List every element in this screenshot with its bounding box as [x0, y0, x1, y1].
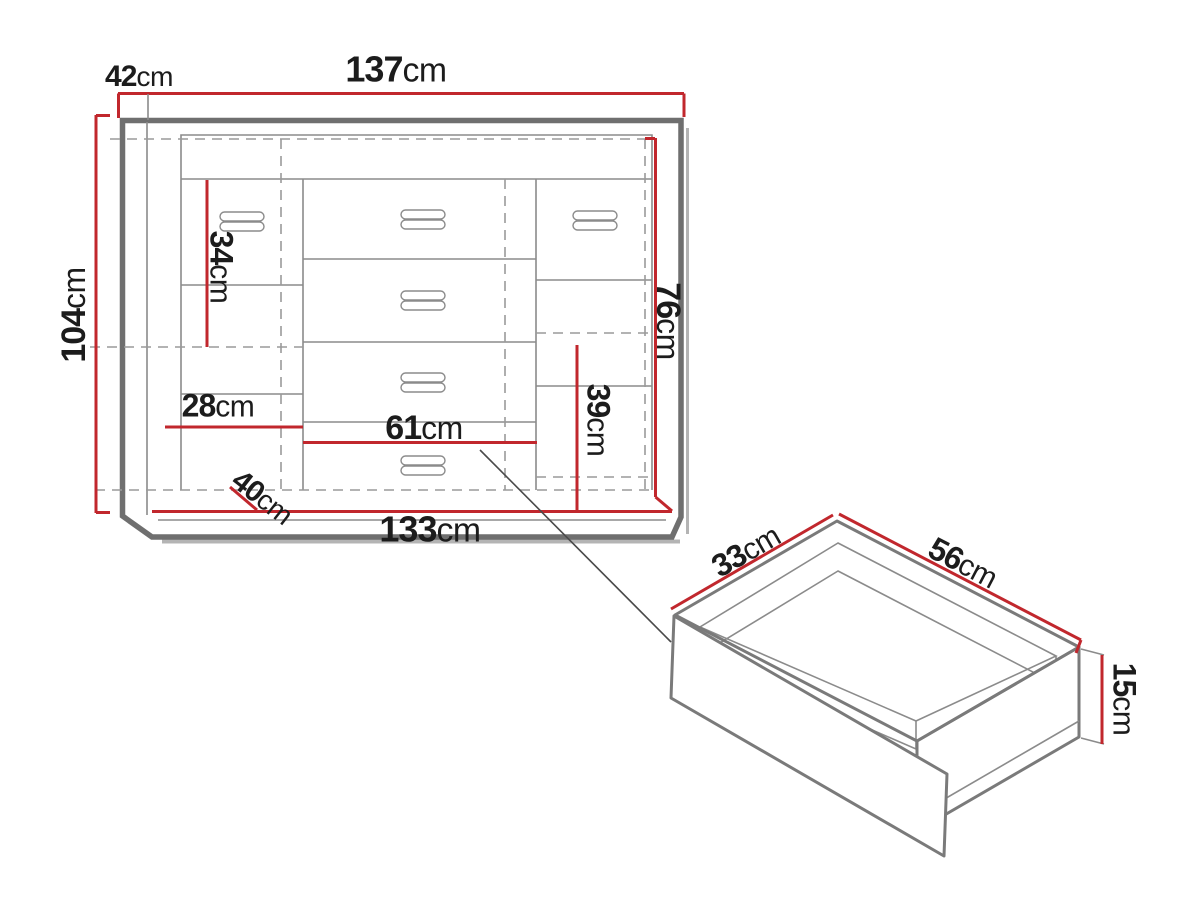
drawer-handle [401, 456, 445, 475]
dim-label-height: 104cm [57, 267, 91, 362]
dim-label-left-inner-height: 34cm [204, 231, 237, 304]
left-door-handle [220, 212, 264, 231]
dim-label-depth: 42cm [105, 62, 173, 92]
drawer-height-dimension [1081, 649, 1104, 744]
dim-label-drawer-section-width: 61cm [385, 411, 462, 445]
furniture-dimension-diagram: 42cm 137cm 104cm 34cm 76cm 28cm 61cm 39c… [0, 0, 1200, 899]
right-door-handle [573, 211, 617, 230]
dim-label-right-door-height: 76cm [651, 282, 685, 359]
dim-label-width-top: 137cm [345, 52, 446, 89]
drawer-handle [401, 373, 445, 392]
dim-label-right-inner-height: 39cm [581, 384, 614, 457]
dim-label-drawer-height: 15cm [1107, 663, 1140, 736]
drawer-handle [401, 291, 445, 310]
dim-label-width-bottom: 133cm [379, 512, 480, 549]
drawer-handle [401, 210, 445, 229]
dim-label-left-shelf-width: 28cm [182, 389, 255, 422]
cabinet-front-view [90, 94, 688, 542]
